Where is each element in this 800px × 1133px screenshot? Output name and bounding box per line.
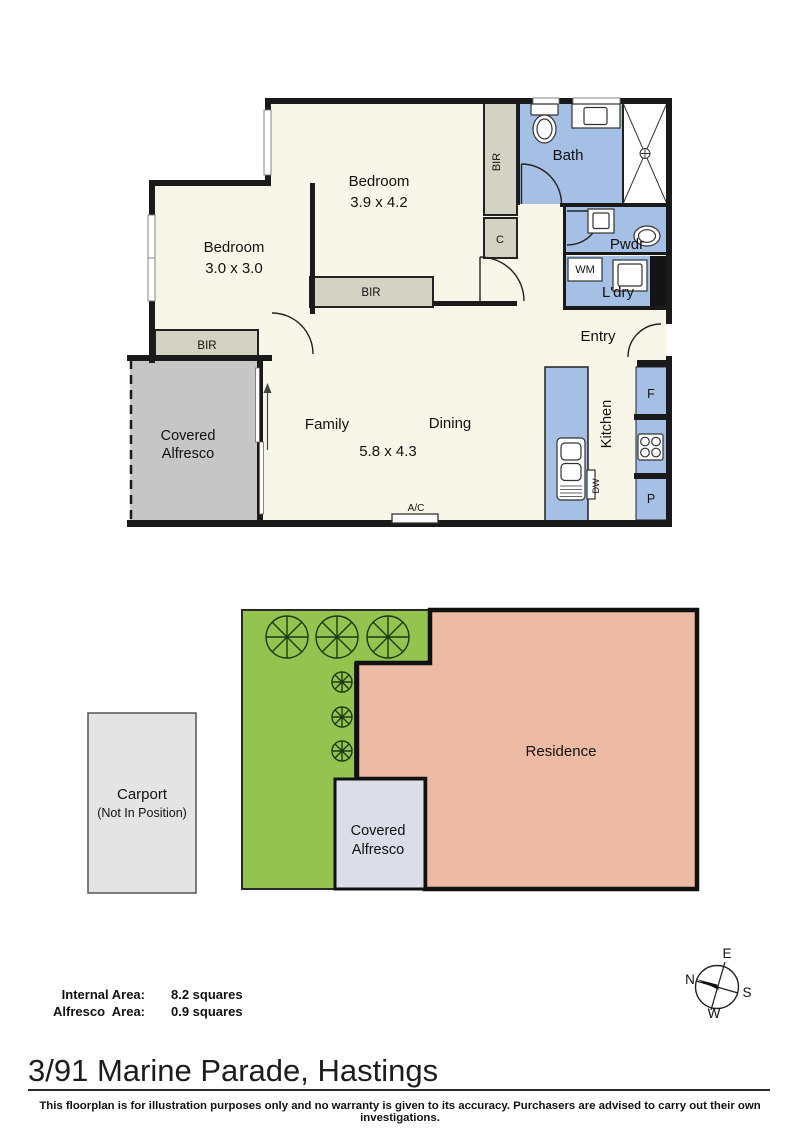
divider-line	[28, 1089, 770, 1091]
label-carport: Carport	[117, 786, 168, 803]
wall-segment	[563, 205, 566, 310]
alfresco-area-label: Alfresco Area:	[30, 1003, 145, 1020]
floor-plan: Bedroom 3.9 x 4.2 Bedroom 3.0 x 3.0 Bath…	[127, 98, 672, 527]
label-bedroom2: Bedroom	[204, 239, 265, 256]
alfresco-area-row: Alfresco Area: 0.9 squares	[30, 1003, 243, 1020]
wall-segment	[127, 355, 272, 361]
label-bedroom2-dims: 3.0 x 3.0	[205, 260, 263, 277]
label-bedroom1: Bedroom	[349, 173, 410, 190]
wall-block	[650, 256, 667, 308]
label-entry: Entry	[580, 328, 616, 345]
compass-w: W	[708, 1006, 721, 1021]
label-bir-bedroom2: BIR	[197, 340, 216, 352]
wall-segment	[563, 306, 667, 310]
cooktop-burner	[641, 437, 650, 446]
wall-segment	[560, 203, 667, 207]
area-summary: Internal Area: 8.2 squares Alfresco Area…	[30, 986, 243, 1020]
wall-segment	[666, 356, 672, 527]
internal-area-value: 8.2 squares	[171, 986, 243, 1003]
compass-e: E	[722, 946, 731, 961]
floorplan-page: Bedroom 3.9 x 4.2 Bedroom 3.0 x 3.0 Bath…	[0, 0, 800, 1133]
label-site-alfresco-1: Covered	[351, 823, 406, 839]
label-bir-vertical: BIR	[491, 153, 503, 171]
label-alfresco-2: Alfresco	[162, 446, 214, 462]
wall-segment	[310, 183, 315, 314]
cooktop-burner	[652, 437, 661, 446]
label-wm: WM	[575, 264, 595, 276]
site-carport	[88, 713, 196, 893]
label-site-alfresco-2: Alfresco	[352, 842, 404, 858]
window	[533, 98, 559, 104]
compass: E N S W	[685, 946, 751, 1021]
compass-n: N	[685, 972, 695, 987]
tree-icon	[316, 616, 358, 658]
internal-area-label: Internal Area:	[30, 986, 145, 1003]
label-fridge: F	[647, 387, 655, 401]
sliding-door-panel	[256, 368, 260, 442]
wall-segment	[637, 360, 672, 367]
alfresco-area-value: 0.9 squares	[171, 1003, 243, 1020]
label-carport-note: (Not In Position)	[97, 806, 187, 820]
label-bath: Bath	[553, 147, 584, 164]
sliding-door-panel	[260, 442, 264, 514]
label-dw: DW	[591, 478, 601, 493]
shrub-icon	[332, 707, 352, 727]
shrub-icon	[332, 741, 352, 761]
label-closet-c: C	[496, 234, 504, 246]
pwdr-basin-inner	[593, 213, 609, 229]
wall-segment	[149, 180, 271, 186]
site-plan: Residence Covered Alfresco Carport (Not …	[88, 610, 697, 893]
toilet-tank-fixture	[531, 104, 558, 115]
sink-basin	[561, 443, 581, 460]
label-family-dims: 5.8 x 4.3	[359, 443, 417, 460]
disclaimer-text: This floorplan is for illustration purpo…	[0, 1100, 800, 1124]
shrub-icon	[332, 672, 352, 692]
vanity-basin	[584, 108, 607, 125]
label-alfresco-1: Covered	[161, 428, 216, 444]
property-address: 3/91 Marine Parade, Hastings	[28, 1053, 438, 1089]
label-residence: Residence	[526, 743, 597, 760]
window	[573, 98, 620, 104]
wall-segment	[666, 98, 672, 324]
label-dining: Dining	[429, 415, 472, 432]
cooktop-burner	[652, 448, 661, 457]
wall-segment	[433, 301, 517, 306]
ac-unit-fixture	[392, 514, 438, 523]
tree-icon	[266, 616, 308, 658]
laundry-tub-inner	[618, 264, 642, 286]
internal-area-row: Internal Area: 8.2 squares	[30, 986, 243, 1003]
label-pwdr: Pwdr	[610, 236, 644, 253]
wall-segment	[517, 103, 520, 205]
compass-needle	[696, 979, 719, 990]
cooktop-burner	[641, 448, 650, 457]
window	[264, 110, 271, 175]
sink-basin	[561, 464, 581, 481]
floorplan-canvas: Bedroom 3.9 x 4.2 Bedroom 3.0 x 3.0 Bath…	[0, 0, 800, 1133]
compass-s: S	[742, 985, 751, 1000]
label-family: Family	[305, 416, 350, 433]
label-bir-middle: BIR	[361, 287, 380, 299]
label-kitchen: Kitchen	[599, 400, 615, 448]
label-ac: A/C	[408, 503, 425, 514]
label-ldry: L'dry	[602, 284, 635, 301]
tree-icon	[367, 616, 409, 658]
label-bedroom1-dims: 3.9 x 4.2	[350, 194, 408, 211]
label-pantry: P	[647, 492, 655, 506]
